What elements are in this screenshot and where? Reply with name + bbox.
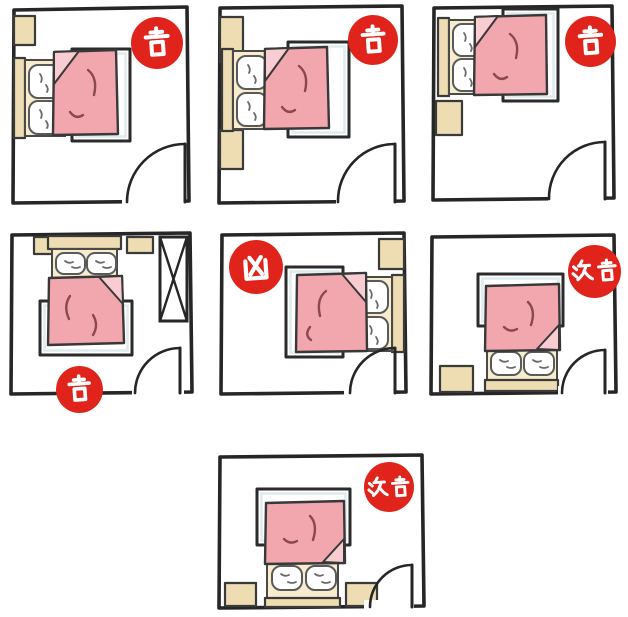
glyph-吉 (64, 374, 95, 405)
door-opening (336, 197, 394, 205)
glyph-次 (569, 258, 595, 284)
glyph-吉 (574, 25, 608, 59)
badge-room7-second-best (364, 462, 414, 512)
glyph-次 (365, 475, 390, 500)
badge-room5-inauspicious (229, 240, 283, 294)
nightstand (225, 583, 256, 606)
pillow (491, 352, 521, 375)
floorplan-grid (0, 0, 628, 617)
door-opening (558, 386, 608, 395)
pillow (272, 566, 302, 590)
nightstand (379, 239, 404, 269)
glyph-吉 (594, 258, 620, 284)
room-4 (8, 230, 194, 396)
glyph-吉 (356, 23, 389, 56)
bed-headboard (222, 49, 233, 131)
badge-room4-auspicious (56, 366, 103, 413)
door-opening (132, 386, 184, 395)
pillow (524, 352, 554, 375)
glyph-吉 (140, 26, 174, 60)
nightstand (127, 237, 153, 253)
badge-room1-auspicious (131, 17, 183, 69)
badge-room3-auspicious (565, 16, 616, 67)
badge-room6-second-best (568, 245, 621, 298)
nightstand (14, 16, 35, 45)
bed-headboard (392, 275, 404, 352)
bed-headboard (265, 598, 340, 607)
bed-headboard (485, 380, 558, 391)
pillow (237, 93, 267, 126)
glyph-凶 (238, 249, 274, 285)
door-opening (122, 197, 186, 205)
glyph-吉 (388, 475, 413, 500)
bed-headboard (438, 18, 449, 96)
pillow (306, 566, 336, 590)
door-opening (548, 192, 606, 201)
bed-headboard (48, 236, 121, 249)
nightstand (440, 366, 473, 392)
door-opening (344, 386, 396, 395)
nightstand (436, 101, 462, 135)
badge-room2-auspicious (348, 15, 398, 65)
bed-headboard (14, 58, 25, 138)
pillow (237, 56, 267, 89)
nightstand (220, 130, 243, 169)
